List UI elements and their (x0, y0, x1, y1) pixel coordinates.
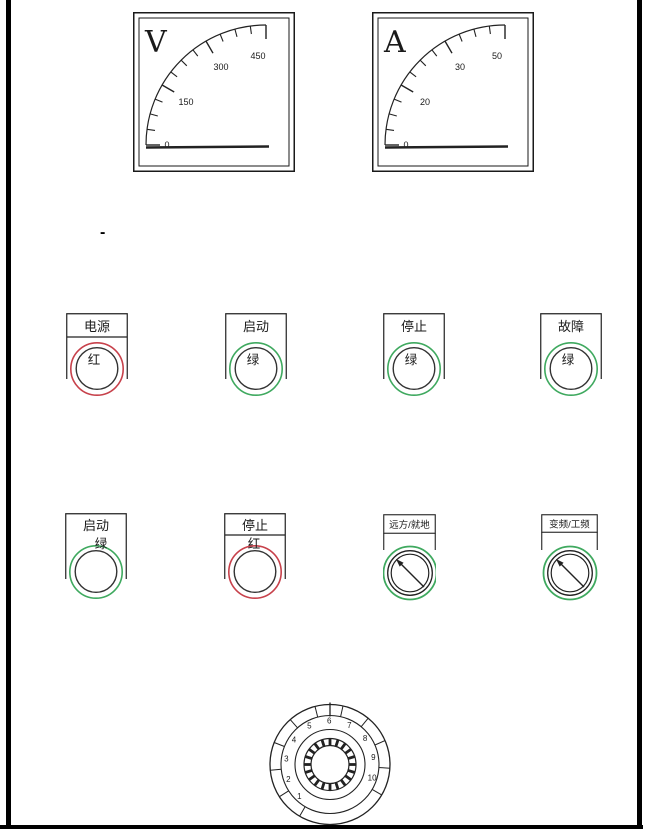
rotary-number: 2 (286, 775, 291, 784)
selector-label: 变频/工频 (549, 519, 590, 531)
panel-drawing-page: - V 0 150 300 450 A (0, 0, 655, 829)
scale-label: 450 (250, 51, 265, 61)
lamp-label: 停止 (401, 319, 427, 334)
rotary-number: 10 (368, 773, 377, 782)
pushbutton-stop[interactable]: 停止 红 (224, 513, 286, 605)
frame-right-bar (637, 0, 642, 825)
scale-label: 300 (213, 62, 228, 72)
button-cap[interactable] (75, 551, 117, 593)
rotary-knob-inner[interactable] (311, 746, 349, 784)
rotary-number: 5 (307, 722, 312, 731)
lamp-label: 启动 (243, 319, 269, 334)
button-cap[interactable] (234, 551, 276, 593)
frame-left-bar (6, 0, 11, 825)
rotary-number: 4 (292, 735, 297, 744)
dash-mark: - (100, 228, 105, 238)
indicator-lamp-stop: 停止 绿 (383, 313, 445, 405)
rotary-number: 7 (347, 721, 352, 730)
button-label: 启动 (83, 518, 109, 533)
scale-label: 30 (455, 62, 465, 72)
voltmeter: V 0 150 300 450 (133, 12, 295, 172)
button-color-text: 绿 (95, 536, 108, 551)
rotary-number: 1 (297, 792, 302, 801)
meter-unit-label: V (144, 25, 168, 60)
ammeter: A 0 20 30 50 (372, 12, 534, 172)
rotary-number: 3 (284, 754, 289, 763)
indicator-lamp-start: 启动 绿 (225, 313, 287, 405)
scale-label: 150 (178, 97, 193, 107)
lamp-color-text: 红 (88, 352, 101, 367)
meter-needle (385, 147, 508, 148)
lamp-color-text: 绿 (247, 352, 260, 367)
indicator-lamp-fault: 故障 绿 (540, 313, 602, 405)
meter-needle (146, 147, 269, 148)
rotary-number: 9 (371, 753, 376, 762)
button-color-text: 红 (248, 536, 261, 551)
button-label: 停止 (242, 518, 268, 533)
lamp-label: 电源 (84, 319, 110, 334)
selector-label: 远方/就地 (389, 519, 430, 531)
lamp-color-text: 绿 (562, 352, 575, 367)
scale-label: 20 (420, 97, 430, 107)
rotary-number: 6 (327, 717, 332, 726)
indicator-lamp-power: 电源 红 (66, 313, 128, 405)
pushbutton-start[interactable]: 启动 绿 (65, 513, 127, 605)
lamp-label: 故障 (558, 319, 584, 334)
selector-switch-remote-local[interactable]: 远方/就地 (383, 514, 436, 606)
rotary-number: 8 (363, 734, 368, 743)
rotary-switch[interactable]: 1 2 3 4 5 6 7 8 9 10 (268, 702, 392, 829)
lamp-color-text: 绿 (405, 352, 418, 367)
selector-switch-vfd-mains[interactable]: 变频/工频 (541, 514, 599, 606)
meter-unit-label: A (383, 25, 406, 60)
scale-label: 50 (492, 51, 502, 61)
